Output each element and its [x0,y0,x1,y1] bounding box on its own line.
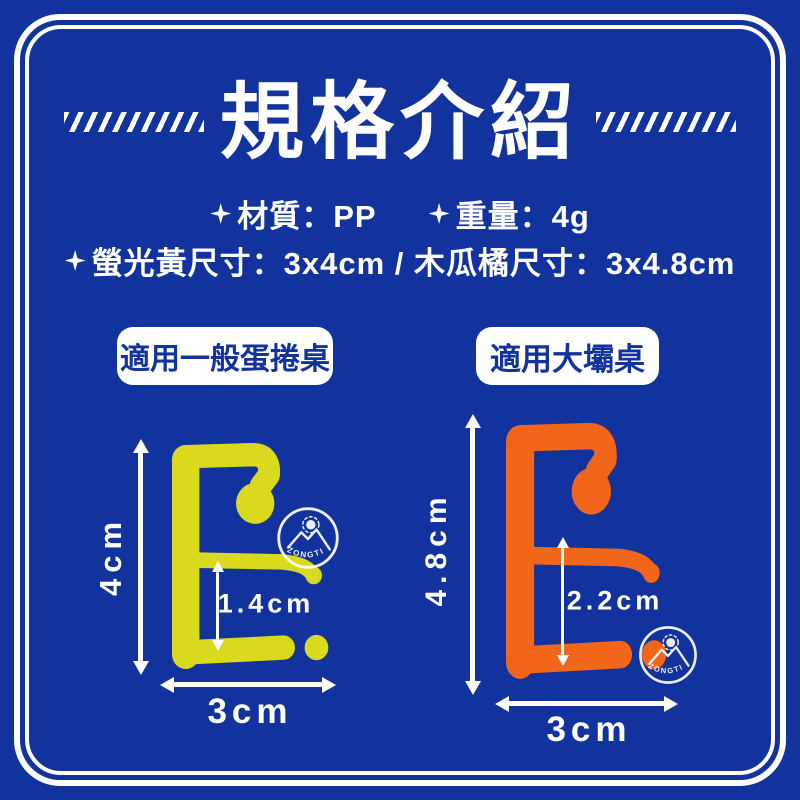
width-dimension-yellow: 3cm [207,692,292,732]
badge-egg-roll-table-label: 適用一般蛋捲桌 [120,334,330,378]
badge-egg-roll-table: 適用一般蛋捲桌 [117,327,333,385]
spec-sizes: 螢光黃尺寸：3x4cm / 木瓜橘尺寸：3x4.8cm [65,238,736,283]
height-arrow-yellow [138,452,143,662]
spec-material: 材質：PP [210,191,376,236]
svg-text:ZONGTI: ZONGTI [286,545,326,559]
badge-dam-table-label: 適用大壩桌 [490,334,645,379]
spec-material-text: 材質：PP [237,191,376,236]
watermark-text: ZONGTI [647,661,685,675]
slash-ticks-left-icon [64,112,204,132]
spec-weight-text: 重量：4g [456,191,590,236]
four-pointed-star-icon [65,250,86,271]
height-dimension-yellow: 4cm [93,516,129,596]
four-pointed-star-icon [210,203,231,224]
four-pointed-star-icon [429,203,450,224]
width-arrow-yellow [173,682,323,687]
spec-line-sizes: 螢光黃尺寸：3x4cm / 木瓜橘尺寸：3x4.8cm [0,238,800,283]
watermark-text: ZONGTI [286,545,326,559]
width-arrow-orange [508,701,665,706]
slash-ticks-right-icon [596,112,736,132]
gap-dimension-orange: 2.2cm [567,586,664,617]
zongti-watermark-icon: ZONGTI [636,623,700,687]
gap-arrow-orange [561,548,564,655]
title-row: 規格介紹 [0,70,800,174]
height-arrow-orange [470,427,475,682]
badge-dam-table: 適用大壩桌 [476,327,659,385]
zongti-watermark-icon: ZONGTI [274,504,342,572]
svg-text:ZONGTI: ZONGTI [647,661,685,675]
product-spec-card: 規格介紹 材質：PP 重量：4g 螢光黃尺寸：3x4cm / 木瓜橘尺寸：3x4… [0,0,800,800]
spec-sizes-text: 螢光黃尺寸：3x4cm / 木瓜橘尺寸：3x4.8cm [92,238,736,283]
height-dimension-orange: 4.8cm [420,491,454,606]
spec-weight: 重量：4g [429,191,590,236]
width-dimension-orange: 3cm [546,710,631,750]
gap-dimension-yellow: 1.4cm [218,589,315,620]
spec-line-material-weight: 材質：PP 重量：4g [0,191,800,236]
page-title: 規格介紹 [220,80,580,164]
